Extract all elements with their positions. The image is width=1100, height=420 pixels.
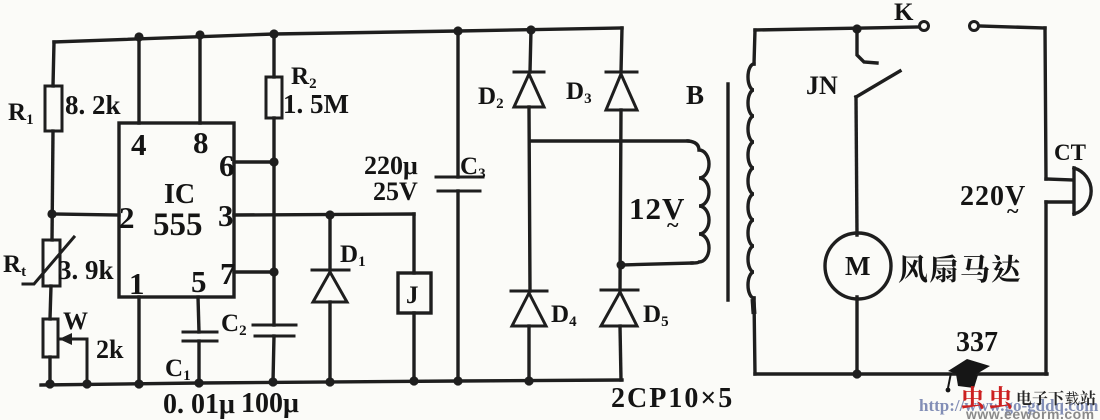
svg-text:IC: IC (164, 179, 195, 210)
svg-text:CT: CT (1054, 140, 1086, 165)
svg-text:6: 6 (219, 148, 235, 183)
svg-text:337: 337 (956, 327, 998, 358)
svg-text:W: W (63, 308, 88, 335)
svg-text:5: 5 (191, 264, 207, 299)
svg-text:0. 01μ: 0. 01μ (163, 389, 235, 420)
svg-text:2: 2 (119, 200, 135, 235)
svg-text:4: 4 (131, 127, 147, 162)
svg-text:~: ~ (667, 212, 679, 237)
svg-text:8. 2k: 8. 2k (65, 90, 121, 120)
svg-text:2k: 2k (96, 335, 124, 364)
svg-text:J: J (406, 282, 419, 309)
svg-text:25V: 25V (373, 177, 418, 206)
svg-text:1. 5M: 1. 5M (283, 89, 349, 119)
svg-text:www.eeworm.com: www.eeworm.com (965, 406, 1095, 420)
svg-text:B: B (686, 80, 704, 110)
svg-text:1: 1 (129, 266, 145, 301)
svg-text:100μ: 100μ (241, 388, 299, 419)
svg-text:M: M (845, 251, 870, 281)
svg-text:555: 555 (153, 207, 203, 243)
svg-text:220μ: 220μ (364, 151, 418, 180)
svg-text:~: ~ (1007, 198, 1019, 223)
svg-text:K: K (894, 0, 914, 26)
svg-text:JN: JN (806, 71, 838, 100)
svg-text:3: 3 (218, 198, 234, 233)
svg-text:3. 9k: 3. 9k (58, 255, 114, 285)
svg-text:2CP10×5: 2CP10×5 (611, 383, 734, 414)
svg-text:8: 8 (193, 125, 209, 160)
